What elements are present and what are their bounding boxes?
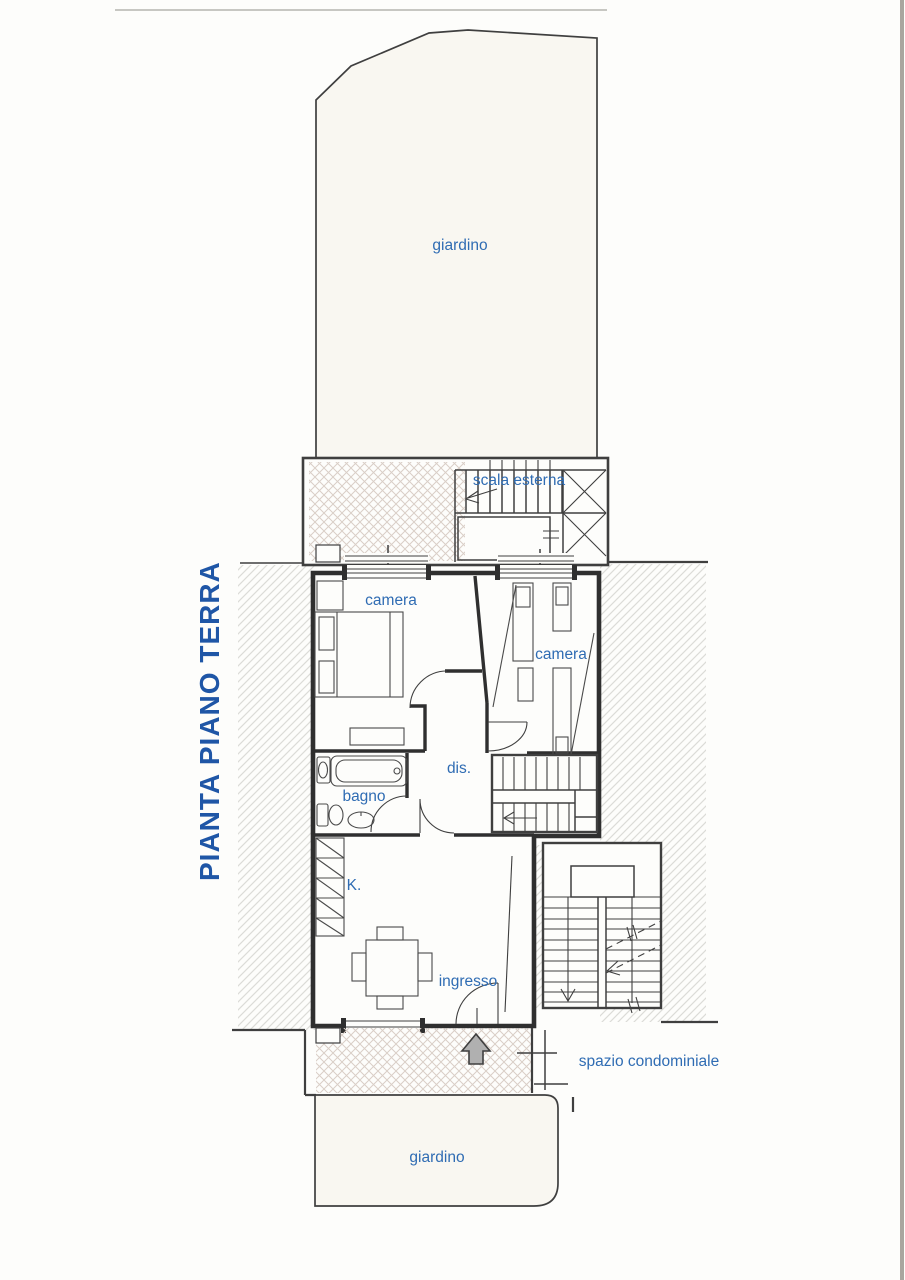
label-hallway: dis. (447, 760, 471, 778)
page-title: PIANTA PIANO TERRA (194, 531, 226, 881)
label-bedroom-right: camera (535, 646, 587, 664)
internal-stair (492, 755, 597, 832)
floor-plan-page: PIANTA PIANO TERRA giardino scala estern… (0, 0, 905, 1280)
label-condo-space: spazio condominiale (579, 1053, 719, 1071)
floor-plan-drawing (0, 0, 905, 1280)
label-bathroom: bagno (342, 788, 385, 806)
label-kitchen: K. (347, 877, 362, 895)
condo-stair (543, 843, 661, 1013)
label-bedroom-left: camera (365, 592, 417, 610)
label-external-stair: scala esterna (473, 472, 565, 490)
label-entrance: ingresso (439, 973, 498, 991)
label-garden-top: giardino (432, 237, 487, 255)
label-garden-bottom: giardino (409, 1149, 464, 1167)
